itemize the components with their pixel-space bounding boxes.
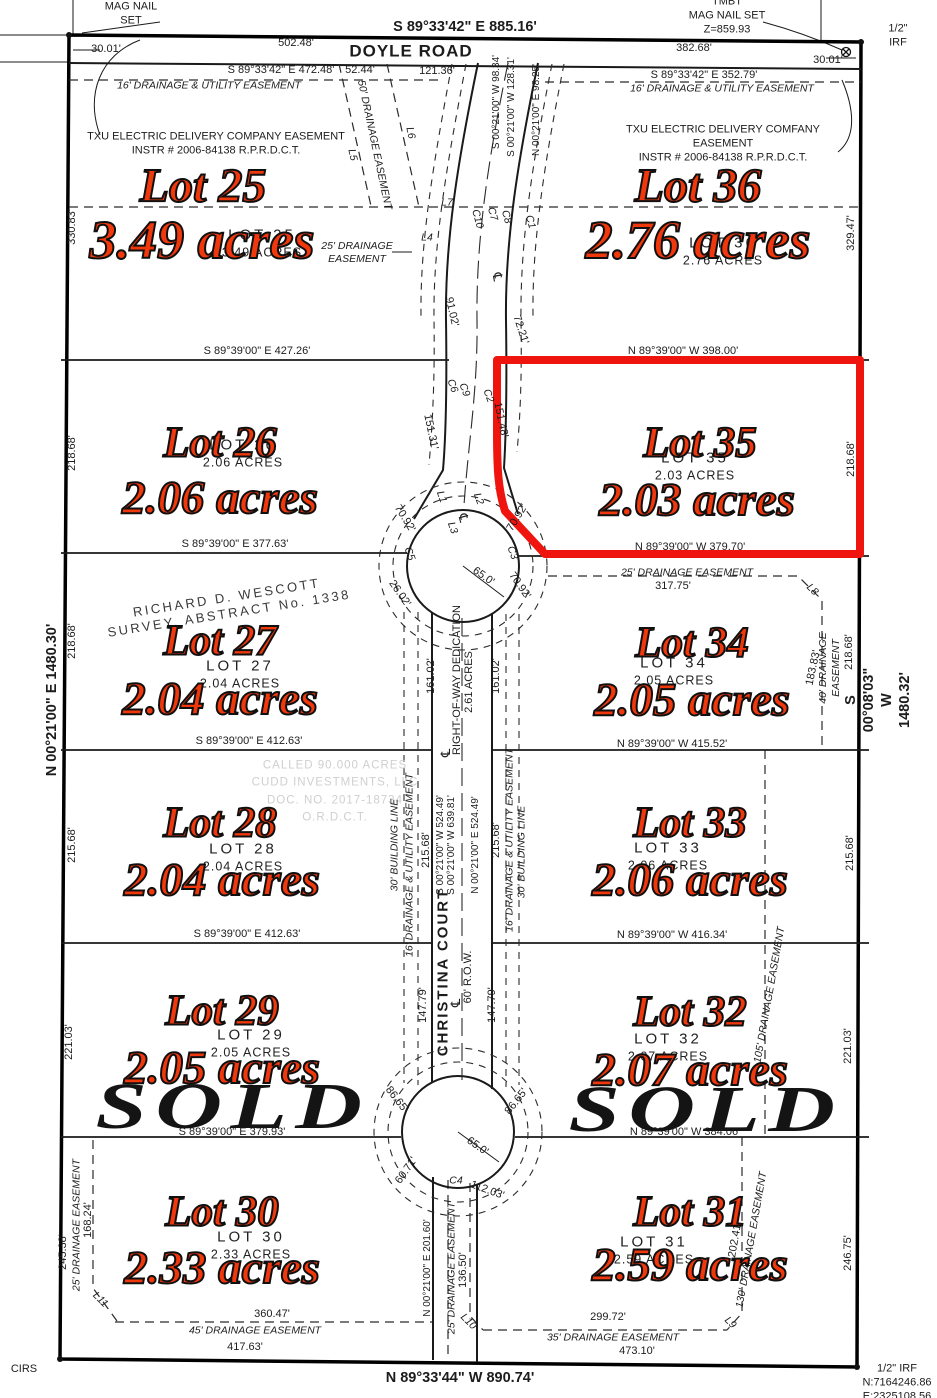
dim-label-86: 215.68' [844, 835, 858, 871]
dim-label-19: L6 [402, 126, 417, 140]
dim-label-46: L1 [433, 489, 449, 504]
dim-label-112: 360.47' [254, 1308, 290, 1322]
dim-label-122: 473.10' [619, 1345, 655, 1359]
dim-label-75: 215.68' [66, 827, 80, 863]
south-boundary-bearing: N 89°33'44" W 890.74' [386, 1369, 535, 1387]
dim-label-66: 161.02' [490, 658, 504, 694]
dim-label-57: 25' DRAINAGE EASEMENT [621, 566, 753, 579]
dim-label-5: 502.48' [278, 37, 314, 51]
dim-label-61: 218.68' [66, 623, 80, 659]
lot-28-label: Lot 28 [163, 799, 276, 848]
dim-label-62: S 89°39'00" E 412.63' [196, 735, 303, 749]
dim-label-8: 30.01' [813, 54, 843, 68]
dim-label-56: 26.02' [385, 578, 413, 610]
lot-26-label: Lot 26 [163, 419, 276, 468]
dim-label-108: 245.38' [57, 1234, 71, 1270]
dim-label-99: 86.65' [502, 1086, 531, 1118]
dim-label-89: 221.03' [63, 1024, 77, 1060]
dim-label-103: 112.03' [468, 1179, 506, 1204]
mag-nail-set-note: MAG NAIL SET [105, 0, 158, 28]
txu-easement-west: TXU ELECTRIC DELIVERY COMPANY EASEMENT I… [87, 130, 345, 158]
dim-label-7: 382.68' [676, 42, 712, 56]
lot-30-acreage-label: 2.33 acres [124, 1241, 320, 1295]
dim-label-21: L4 [421, 231, 433, 244]
dim-label-9: S 89°33'42" E 472.48' [228, 64, 335, 78]
lot-34-label: Lot 34 [635, 619, 748, 668]
lot-32-sold-overlay: SOLD [569, 1072, 844, 1148]
dim-label-23: C10 [468, 208, 486, 230]
dim-label-35: N 00°21'00" E 98.25' [531, 64, 544, 156]
doyle-road-label: DOYLE ROAD [349, 40, 472, 61]
dim-label-72: N 89°39'00" W 415.52' [617, 738, 727, 752]
dim-label-114: 417.63' [227, 1341, 263, 1355]
dim-label-81: S 00°21'00" W 639.81' [446, 795, 459, 895]
dim-label-120: 299.72' [590, 1311, 626, 1325]
tmbt-mag-nail-note: TMBT MAG NAIL SET Z=859.93 [689, 0, 766, 37]
north-boundary-bearing: S 89°33'42" E 885.16' [393, 18, 537, 36]
dim-label-40: 218.68' [66, 435, 80, 471]
dim-label-44: 218.68' [845, 441, 859, 477]
dim-label-12: S 89°33'42" E 352.79' [651, 69, 758, 83]
drainage-utility-easement-ne: 16' DRAINAGE & UTILITY EASEMENT [630, 82, 814, 95]
plat-map-canvas: MAG NAIL SETTMBT MAG NAIL SET Z=859.931/… [0, 0, 937, 1398]
dim-label-85: 30' BUILDING LINE [515, 806, 528, 898]
dim-label-41: S 89°39'00" E 377.63' [182, 538, 289, 552]
dim-label-78: 16' DRAINAGE & UTILITY EASEMENT [403, 773, 416, 957]
lot-28-acreage-label: 2.04 acres [124, 853, 320, 907]
lot-35-acreage-label: 2.03 acres [599, 473, 795, 527]
dim-label-98: 86.65' [381, 1084, 410, 1116]
lot-26-acreage-label: 2.06 acres [122, 471, 318, 525]
lot-27-acreage-label: 2.04 acres [122, 672, 318, 726]
dim-label-79: 215.68' [420, 832, 434, 868]
cirs-corner-note: CIRS [11, 1363, 37, 1377]
dim-label-106: 136.50' [457, 1252, 471, 1288]
dim-label-70: 218.68' [843, 634, 857, 670]
dim-label-113: 45' DRAINAGE EASEMENT [189, 1324, 321, 1337]
lot-31-label: Lot 31 [633, 1188, 746, 1237]
dim-label-18: L5 [344, 148, 359, 162]
dim-label-43: 151.48' [490, 401, 511, 439]
dim-label-100: 60.71' [393, 1155, 421, 1187]
dim-label-42: 151.31' [420, 413, 441, 451]
dim-label-39: N 89°39'00" W 398.00' [628, 345, 738, 359]
centerline-symbol-north: ℄ [488, 271, 505, 282]
dim-label-25: C8 [498, 209, 514, 225]
dim-label-83: 215.68' [490, 822, 504, 858]
dim-label-119: L9 [721, 1314, 739, 1332]
lot-31-acreage-label: 2.59 acres [592, 1238, 788, 1292]
dim-label-59: L8 [803, 581, 821, 599]
dim-label-45: N 89°39'00" W 379.70' [635, 541, 745, 555]
dim-label-107: L10 [457, 1311, 479, 1333]
lot-35-label: Lot 35 [643, 419, 756, 468]
half-inch-irf-se: 1/2" IRF N:7164246.86 E:2325108.56 [862, 1362, 931, 1398]
dim-label-96: 221.03' [842, 1028, 856, 1064]
dim-label-69: 40' DRAINAGE EASEMENT [817, 615, 843, 722]
dim-label-53: 65.0' [469, 565, 496, 590]
row-width-label: 60' R.O.W. [462, 951, 476, 1004]
lot-29-label: Lot 29 [165, 987, 278, 1036]
dim-label-76: S 89°39'00" E 412.63' [194, 928, 301, 942]
drainage-utility-easement-nw: 16' DRAINAGE & UTILITY EASEMENT [117, 79, 301, 92]
dim-label-52: C3 [504, 544, 521, 561]
dim-label-22: 25' DRAINAGE EASEMENT [321, 240, 392, 266]
dim-label-95: 147.79' [486, 987, 500, 1023]
dim-label-37: S 89°39'00" E 427.26' [204, 345, 311, 359]
dim-label-102: C4 [449, 1174, 462, 1187]
east-boundary-bearing: S 00°08'03" W 1480.32' [842, 668, 915, 733]
dim-label-118: 246.75' [842, 1235, 856, 1271]
dim-label-47: C5 [401, 545, 418, 562]
lot-25-label: Lot 25 [140, 159, 267, 214]
dim-label-54: 70.92' [504, 502, 531, 534]
dim-label-58: 317.75' [655, 580, 691, 594]
dim-label-63: 161.02' [425, 658, 439, 694]
dim-label-4: 30.01' [91, 43, 121, 57]
dim-label-82: N 00°21'00" E 524.49' [470, 796, 483, 894]
dim-label-33: S 00°21'00" W 98.34' [491, 55, 504, 149]
dim-label-111: L11 [89, 1289, 110, 1310]
dim-label-26: C1 [522, 214, 538, 230]
dim-label-10: 52.44' [345, 64, 375, 78]
dim-label-48: 70.92' [390, 503, 417, 535]
dim-label-28: 91.02' [441, 296, 461, 328]
lot-36-acreage-label: 2.76 acres [586, 209, 811, 271]
dim-label-104: N 00°21'00" E 201.60' [422, 1219, 435, 1317]
dim-label-51: L2 [470, 491, 486, 506]
dim-label-17: 50' DRAINAGE EASEMENT [354, 79, 394, 211]
dim-label-20: L7 [441, 196, 453, 209]
centerline-symbol-mid: ℄ [438, 749, 454, 757]
lot-25-acreage-label: 3.49 acres [90, 209, 315, 271]
dim-label-110: 168.24' [82, 1202, 96, 1238]
dim-label-31: C9 [456, 381, 473, 398]
dim-label-11: 121.36' [419, 65, 455, 79]
dim-label-38: 329.47' [845, 215, 859, 251]
lot-32-label: Lot 32 [633, 988, 746, 1037]
dim-label-101: 65.0' [463, 1135, 490, 1160]
dim-label-34: S 00°21'00" W 128.31' [506, 57, 519, 157]
lot-27-label: Lot 27 [163, 617, 276, 666]
lot-33-label: Lot 33 [633, 799, 746, 848]
dim-label-36: 330.83' [66, 209, 80, 245]
dim-label-55: 70.92' [505, 570, 533, 602]
christina-court-label: CHRISTINA COURT [435, 888, 454, 1057]
lot-33-acreage-label: 2.06 acres [592, 853, 788, 907]
dim-label-29: 72.21' [509, 314, 531, 346]
annotation-layer: MAG NAIL SETTMBT MAG NAIL SET Z=859.931/… [0, 0, 937, 1398]
west-boundary-bearing: N 00°21'00" E 1480.30' [43, 624, 61, 777]
dim-label-121: 35' DRAINAGE EASEMENT [547, 1331, 679, 1344]
lot-36-label: Lot 36 [635, 159, 762, 214]
centerline-symbol-bulb-north: ℄ [454, 512, 472, 524]
dim-label-87: N 89°39'00" W 416.34' [617, 929, 727, 943]
lot-29-sold-overlay: SOLD [96, 1069, 371, 1145]
lot-30-label: Lot 30 [165, 1188, 278, 1237]
lot-34-acreage-label: 2.05 acres [594, 673, 790, 727]
dim-label-94: 147.79' [417, 987, 431, 1023]
dim-label-65: 2.61 ACRES [463, 651, 477, 713]
dim-label-77: 30' BUILDING LINE [388, 799, 401, 891]
half-inch-irf-ne: 1/2" IRF [879, 22, 918, 50]
